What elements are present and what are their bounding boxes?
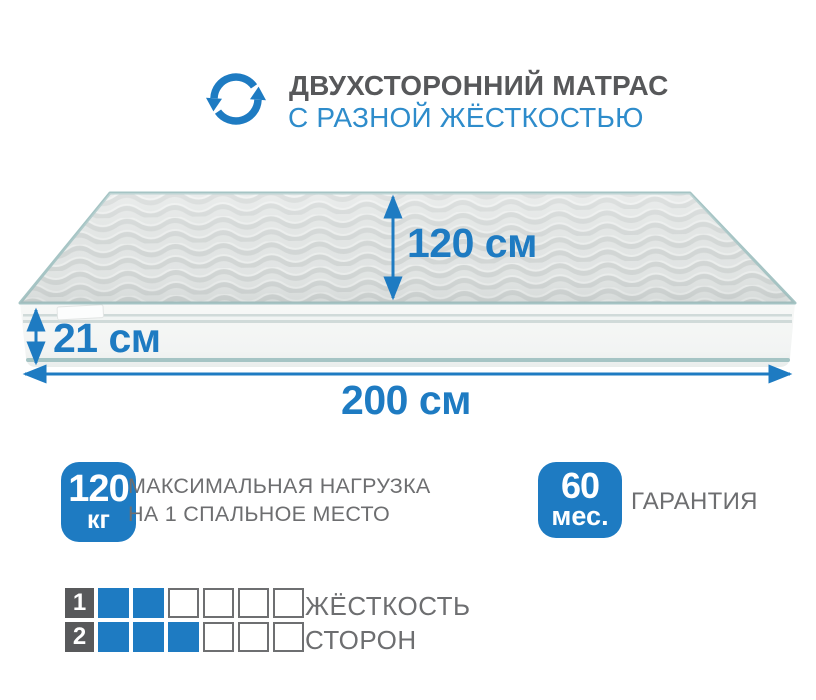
max-load-value: 120 bbox=[68, 471, 128, 507]
firmness-side-number-2: 2 bbox=[65, 622, 94, 652]
firmness-caption-line2: СТОРОН bbox=[305, 623, 471, 657]
warranty-caption: ГАРАНТИЯ bbox=[631, 488, 758, 516]
firmness-cell-empty bbox=[273, 622, 304, 652]
rotate-icon bbox=[203, 64, 269, 132]
height-dimension-label: 21 см bbox=[53, 315, 161, 361]
firmness-cell-empty bbox=[238, 622, 269, 652]
firmness-cell-empty bbox=[273, 588, 304, 618]
warranty-value: 60 bbox=[561, 470, 599, 502]
firmness-cell-filled bbox=[133, 588, 164, 618]
rotate-icon-bottom-arc bbox=[218, 100, 258, 121]
max-load-caption: МАКСИМАЛЬНАЯ НАГРУЗКА НА 1 СПАЛЬНОЕ МЕСТ… bbox=[128, 472, 431, 528]
mattress-illustration: 120 см 21 см 200 см bbox=[0, 168, 816, 430]
max-load-badge: 120 кг bbox=[61, 462, 136, 542]
firmness-cell-filled bbox=[168, 622, 199, 652]
firmness-cell-filled bbox=[98, 622, 129, 652]
firmness-row-side1: 1 bbox=[65, 588, 304, 618]
firmness-cell-empty bbox=[168, 588, 199, 618]
firmness-cells-side2 bbox=[98, 622, 304, 652]
firmness-cell-filled bbox=[98, 588, 129, 618]
max-load-caption-line1: МАКСИМАЛЬНАЯ НАГРУЗКА bbox=[128, 472, 431, 500]
rotate-icon-right-arrowhead bbox=[250, 87, 266, 101]
firmness-scale: 1 2 bbox=[65, 588, 304, 656]
firmness-cell-empty bbox=[238, 588, 269, 618]
firmness-side-number-1: 1 bbox=[65, 588, 94, 618]
width-dimension-label: 200 см bbox=[341, 377, 471, 423]
firmness-caption: ЖЁСТКОСТЬ СТОРОН bbox=[305, 589, 471, 657]
firmness-cell-empty bbox=[203, 588, 234, 618]
rotate-icon-top-arc bbox=[214, 77, 254, 98]
page-title: ДВУХСТОРОННИЙ МАТРАС bbox=[289, 70, 669, 102]
firmness-cells-side1 bbox=[98, 588, 304, 618]
max-load-unit: кг bbox=[87, 507, 110, 533]
firmness-caption-line1: ЖЁСТКОСТЬ bbox=[305, 589, 471, 623]
max-load-caption-line2: НА 1 СПАЛЬНОЕ МЕСТО bbox=[128, 500, 431, 528]
firmness-row-side2: 2 bbox=[65, 622, 304, 652]
firmness-cell-empty bbox=[203, 622, 234, 652]
depth-dimension-label: 120 см bbox=[407, 220, 537, 266]
warranty-unit: мес. bbox=[551, 502, 608, 530]
firmness-cell-filled bbox=[133, 622, 164, 652]
rotate-icon-left-arrowhead bbox=[206, 98, 222, 112]
page-subtitle: С РАЗНОЙ ЖЁСТКОСТЬЮ bbox=[288, 102, 644, 134]
warranty-badge: 60 мес. bbox=[538, 462, 622, 538]
